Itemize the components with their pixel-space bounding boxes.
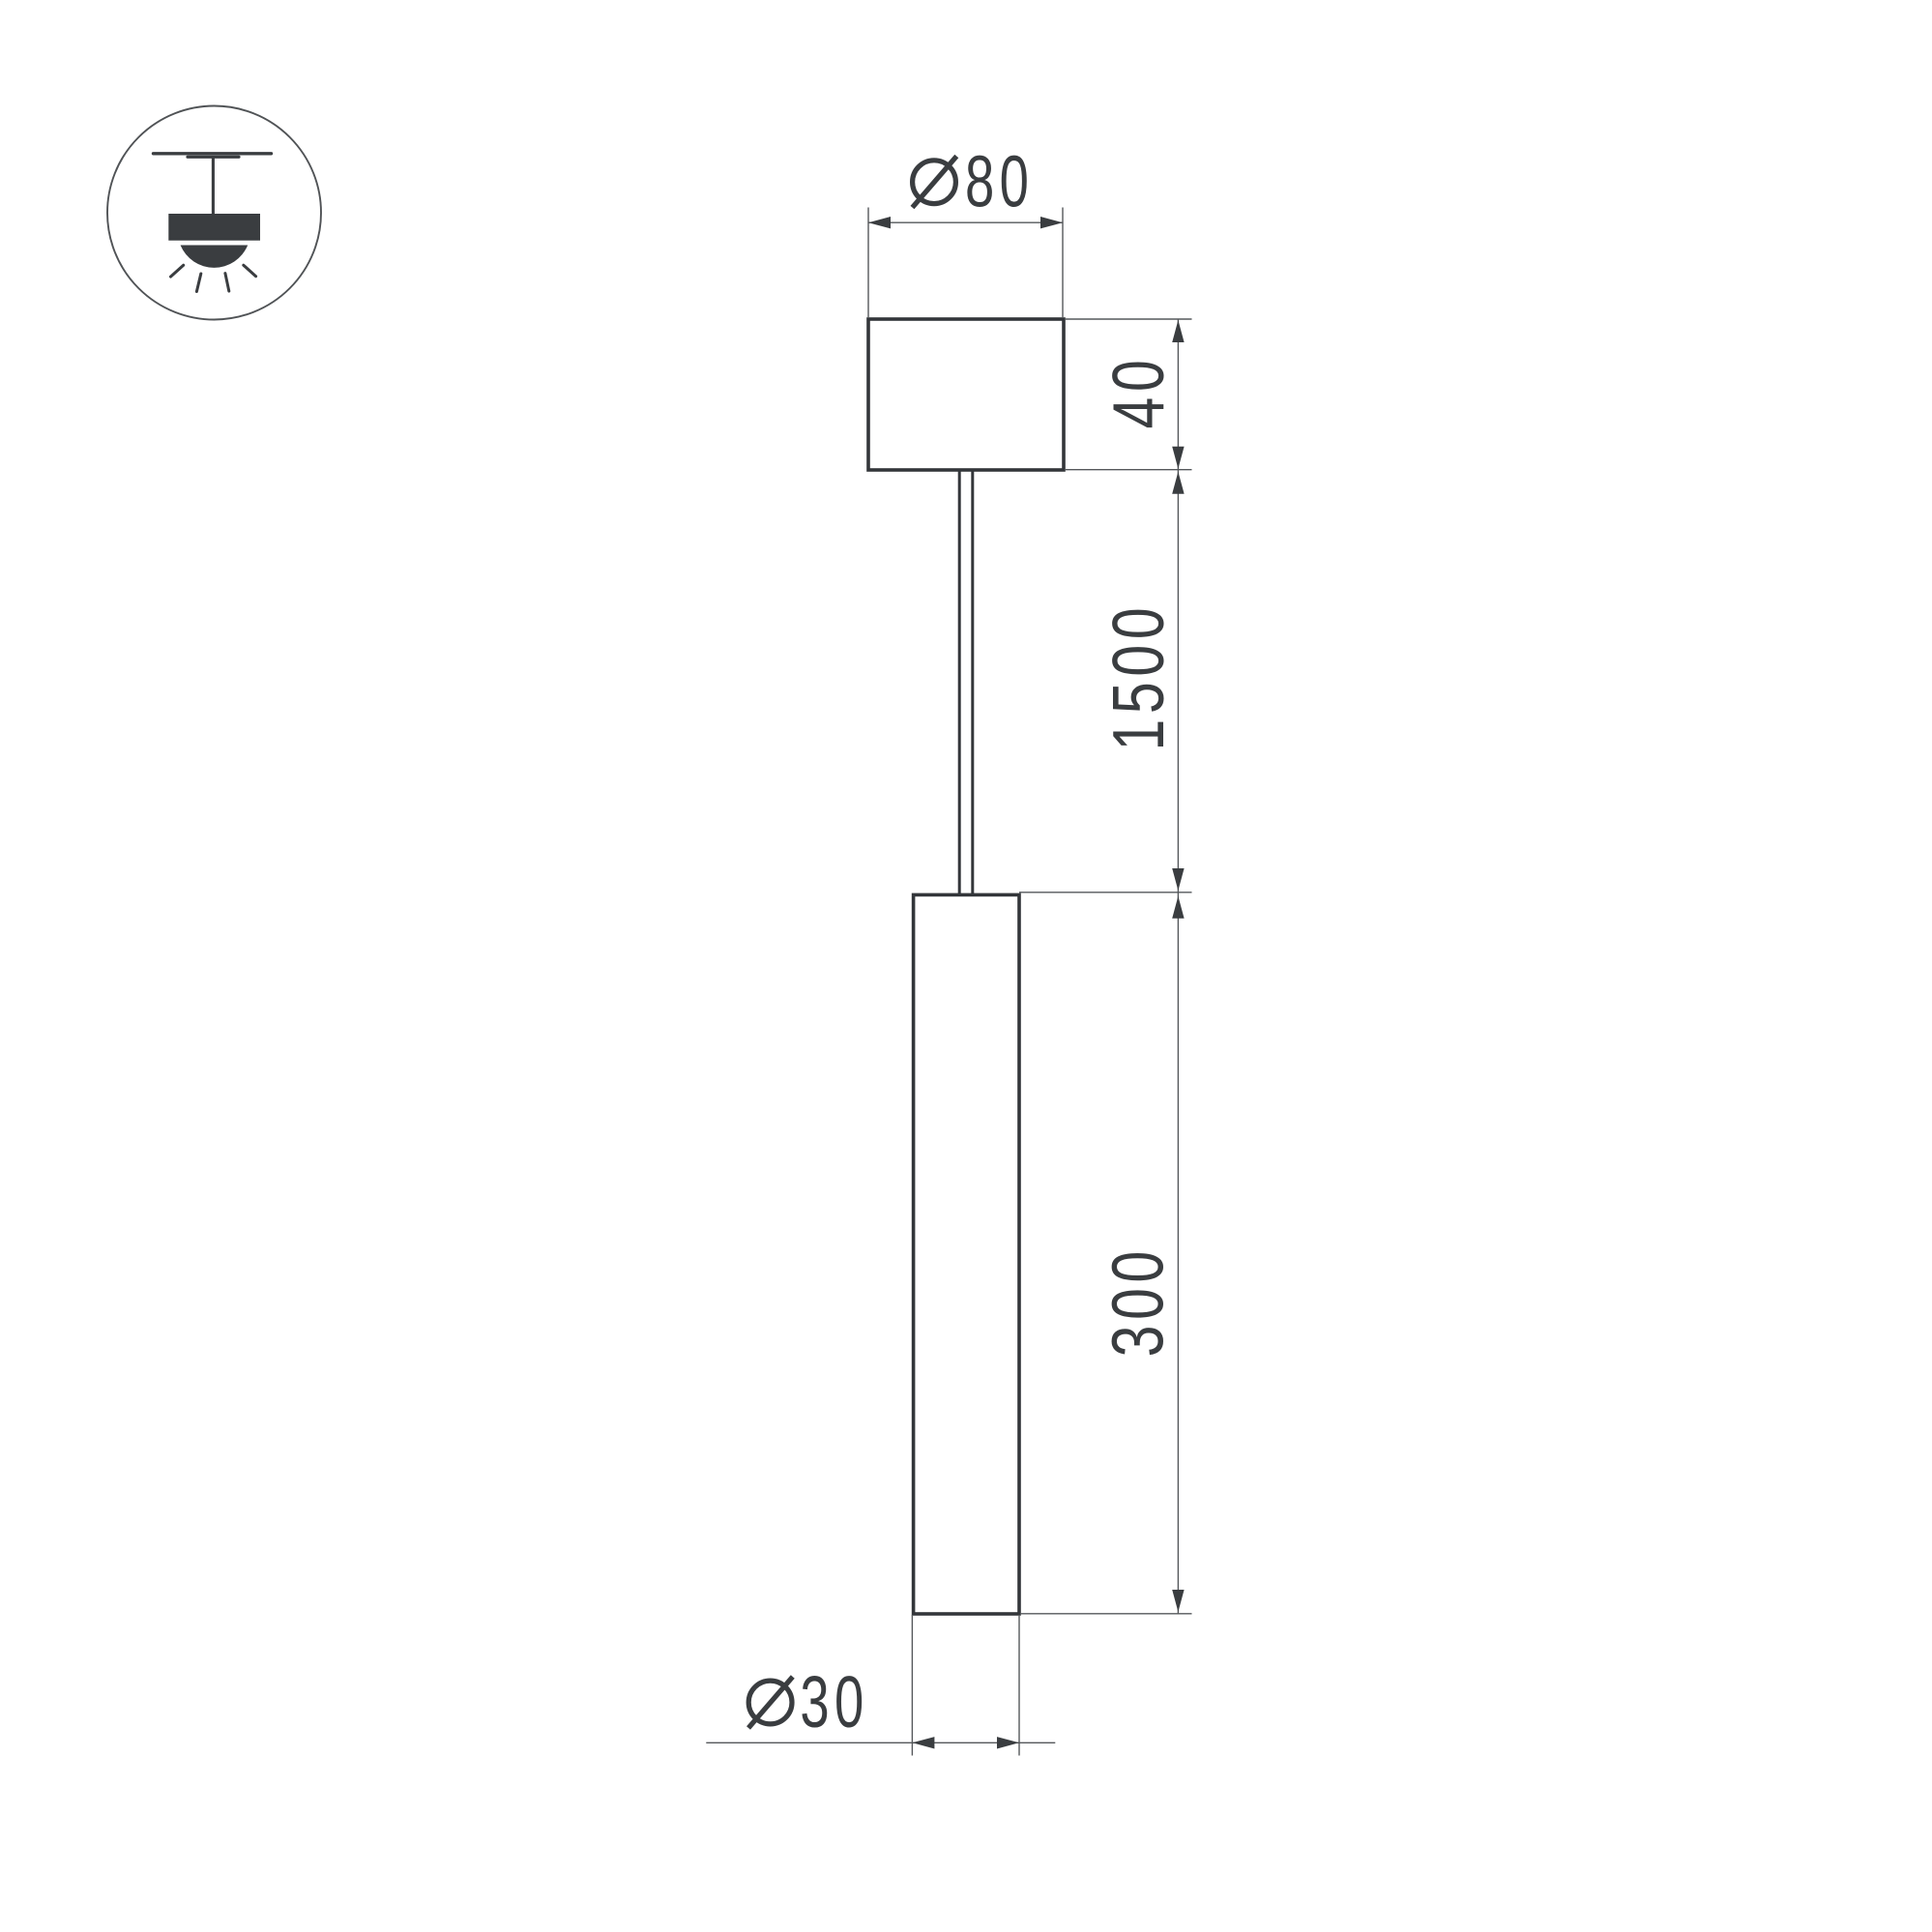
svg-text:80: 80 (965, 140, 1034, 222)
svg-text:40: 40 (1098, 355, 1180, 429)
svg-text:300: 300 (1098, 1245, 1180, 1357)
svg-text:30: 30 (800, 1660, 868, 1742)
svg-text:1500: 1500 (1098, 602, 1180, 751)
